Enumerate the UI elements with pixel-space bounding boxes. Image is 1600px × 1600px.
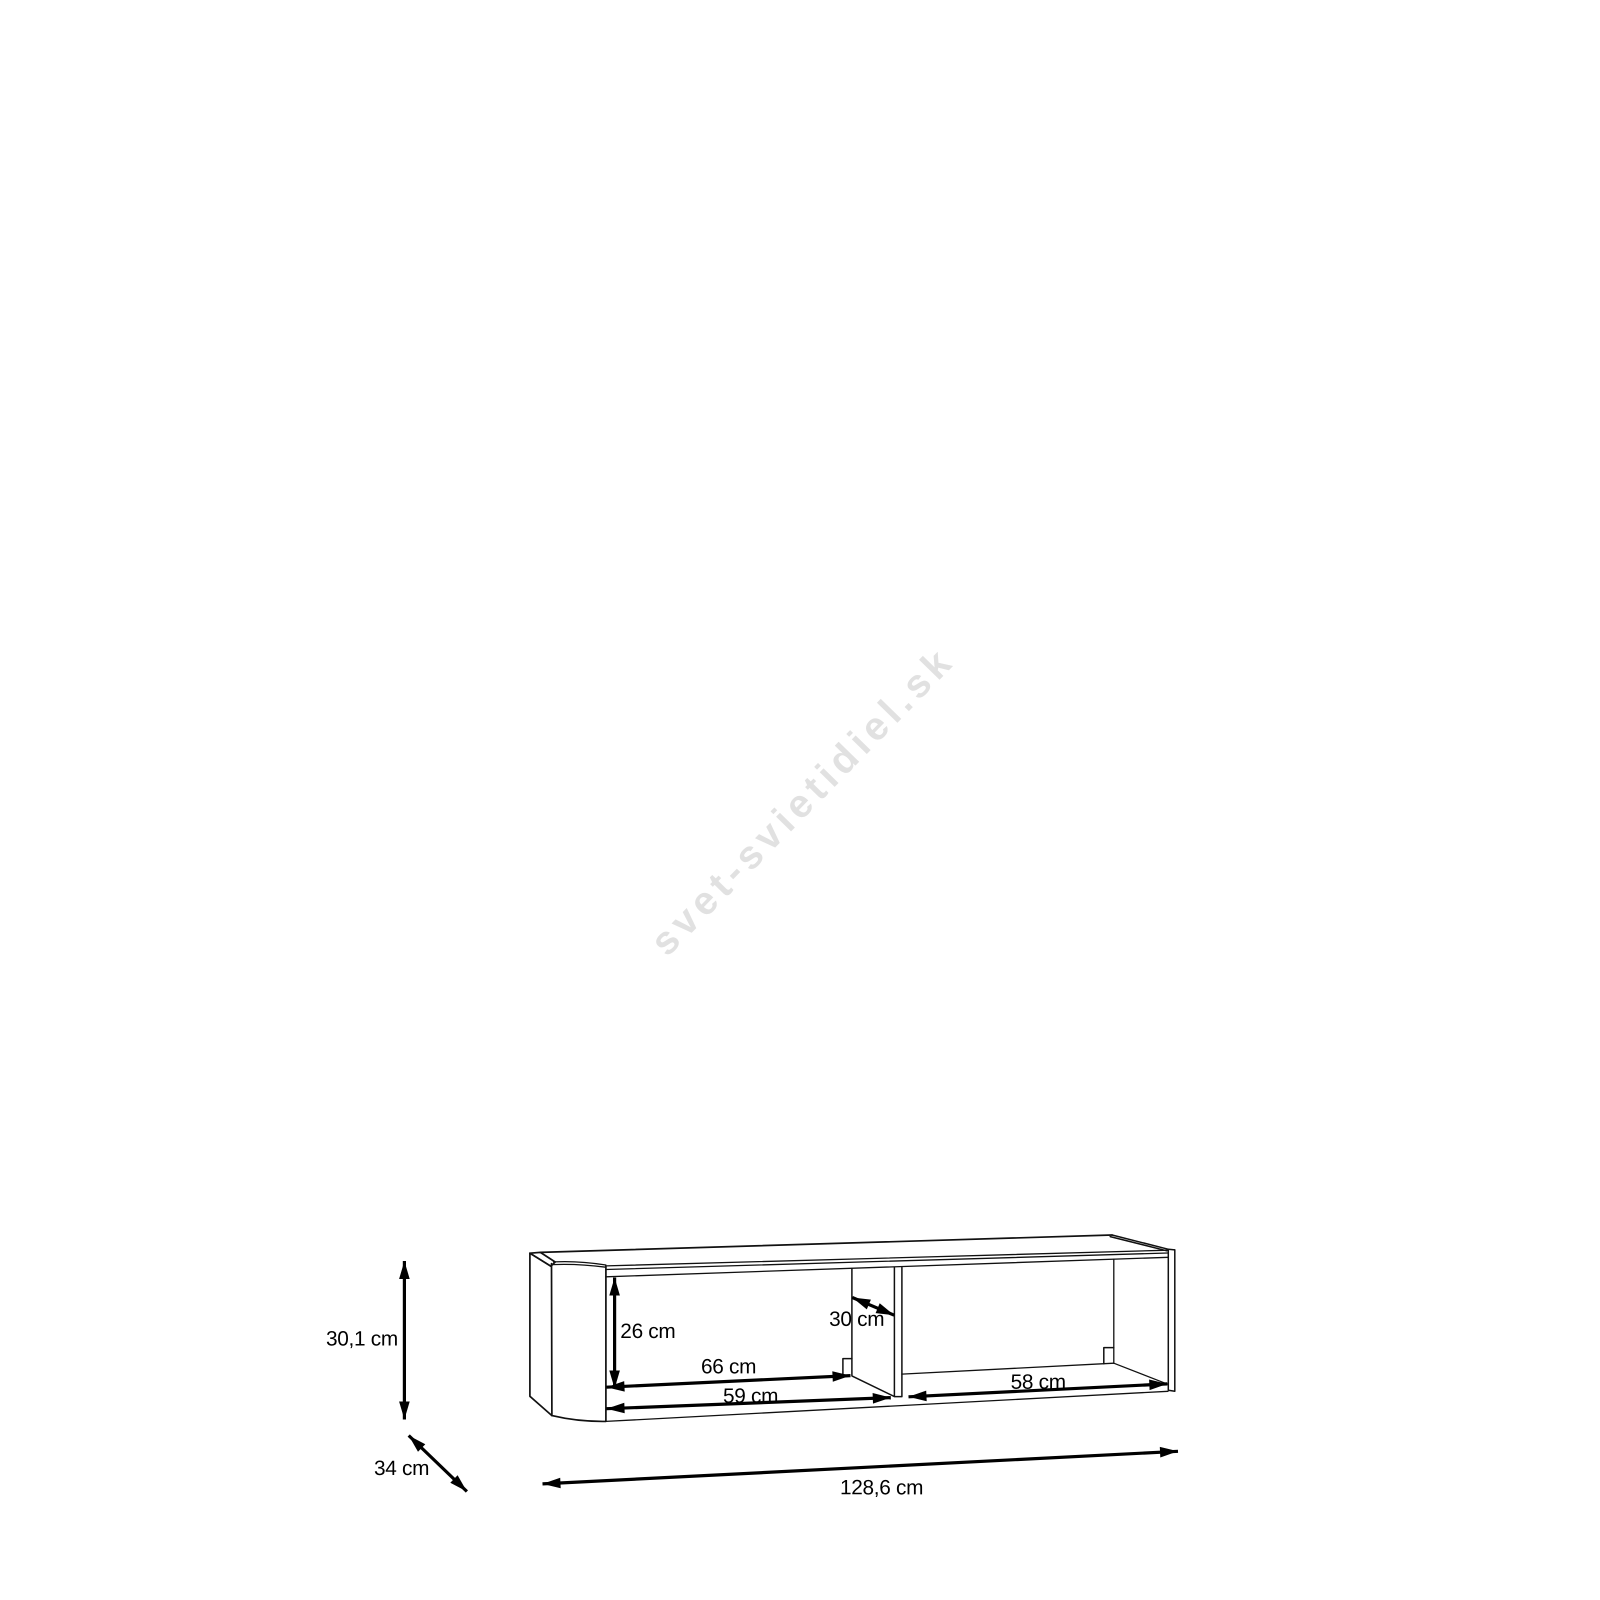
svg-text:26 cm: 26 cm: [620, 1320, 675, 1343]
svg-text:128,6 cm: 128,6 cm: [840, 1476, 923, 1499]
svg-text:34 cm: 34 cm: [374, 1457, 429, 1480]
svg-text:30 cm: 30 cm: [829, 1308, 884, 1331]
svg-text:58 cm: 58 cm: [1011, 1371, 1066, 1394]
svg-text:66 cm: 66 cm: [701, 1355, 756, 1378]
svg-text:30,1 cm: 30,1 cm: [326, 1328, 398, 1351]
svg-text:59 cm: 59 cm: [723, 1385, 778, 1408]
